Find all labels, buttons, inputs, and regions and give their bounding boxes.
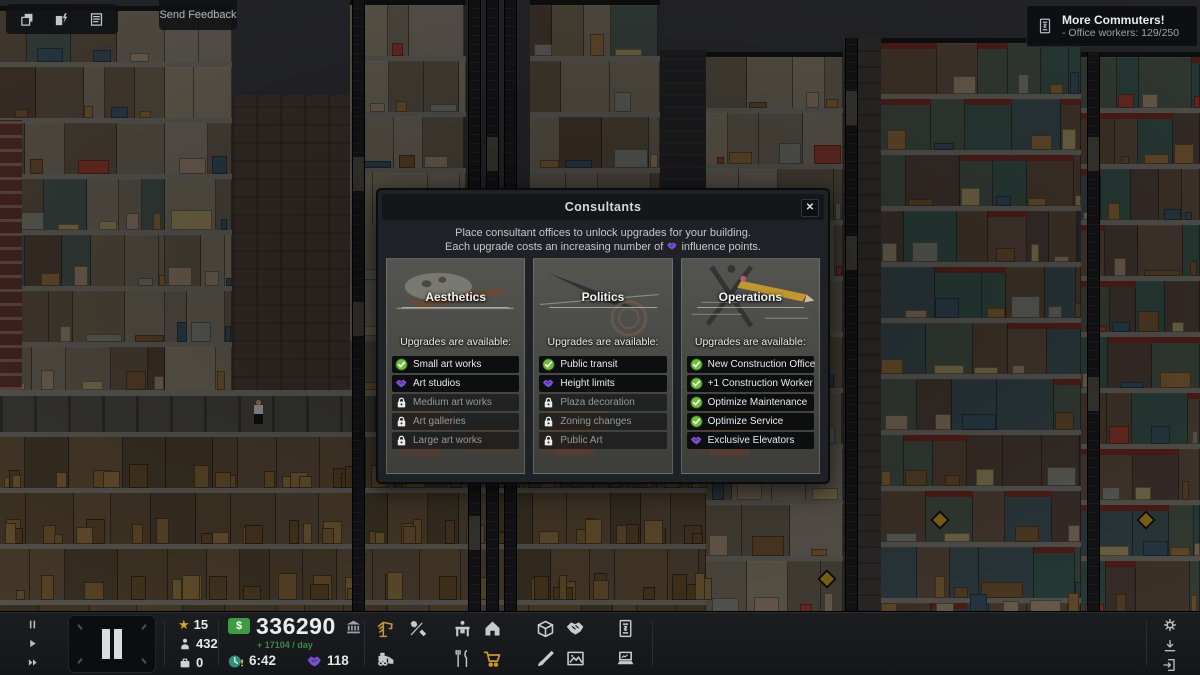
- influence-icon: [666, 240, 678, 252]
- check-icon: [690, 377, 703, 390]
- card-title: Aesthetics: [387, 290, 524, 304]
- cart-icon[interactable]: [480, 646, 504, 670]
- speed-dial[interactable]: [68, 615, 156, 673]
- stat-0: ★15: [178, 617, 208, 632]
- upgrade-row[interactable]: Optimize Service: [687, 413, 814, 430]
- game-screen: Send Feedback More Commuters! - Office w…: [0, 0, 1200, 675]
- upgrade-label: Medium art works: [413, 397, 492, 408]
- contract-icon[interactable]: [613, 616, 637, 640]
- notification-title: More Commuters!: [1062, 13, 1179, 27]
- consultants-modal: Consultants ✕ Place consultant offices t…: [376, 188, 830, 484]
- upgrade-row[interactable]: Exclusive Elevators: [687, 432, 814, 449]
- frame-icon[interactable]: [563, 646, 587, 670]
- upgrade-label: Plaza decoration: [560, 397, 635, 408]
- upgrade-label: Optimize Maintenance: [708, 397, 808, 408]
- food-icon[interactable]: [450, 646, 474, 670]
- handshake-icon[interactable]: [563, 616, 587, 640]
- modal-title: Consultants: [565, 200, 642, 214]
- check-icon: [690, 396, 703, 409]
- toolbar-divider: [164, 620, 165, 666]
- consultant-cards: AestheticsUpgrades are available:Small a…: [386, 258, 820, 474]
- modal-description-line2: Each upgrade costs an increasing number …: [378, 240, 828, 254]
- box-icon[interactable]: [533, 616, 557, 640]
- toolbar-divider: [652, 620, 653, 666]
- card-subtitle: Upgrades are available:: [682, 336, 819, 348]
- card-subtitle: Upgrades are available:: [534, 336, 671, 348]
- modal-description: Place consultant offices to unlock upgra…: [378, 226, 828, 254]
- lock-icon: [395, 434, 408, 447]
- upgrade-row[interactable]: Public Art: [539, 432, 666, 449]
- upgrade-row[interactable]: Art galleries: [392, 413, 519, 430]
- modal-description-line1: Place consultant offices to unlock upgra…: [378, 226, 828, 240]
- toolbar-divider: [218, 620, 219, 666]
- upgrade-row[interactable]: Zoning changes: [539, 413, 666, 430]
- influence-value: 118: [327, 653, 349, 668]
- brush-icon[interactable]: [533, 646, 557, 670]
- upgrade-label: Small art works: [413, 359, 481, 370]
- bottom-toolbar: ★154320$336290+ 17104 / day6:42118: [0, 611, 1200, 675]
- upgrade-list: Public transitHeight limitsPlaza decorat…: [539, 356, 666, 451]
- upgrade-row[interactable]: Optimize Maintenance: [687, 394, 814, 411]
- notification-detail: - Office workers: 129/250: [1062, 27, 1179, 40]
- upgrade-label: Optimize Service: [708, 416, 784, 427]
- upgrade-row[interactable]: New Construction Office: [687, 356, 814, 373]
- bank-icon[interactable]: [344, 617, 364, 641]
- upgrade-label: Height limits: [560, 378, 614, 389]
- lock-icon: [542, 396, 555, 409]
- upgrade-row[interactable]: Large art works: [392, 432, 519, 449]
- check-icon: [395, 358, 408, 371]
- upgrade-label: +1 Construction Worker: [708, 378, 813, 389]
- close-icon[interactable]: ✕: [801, 199, 819, 217]
- upgrade-list: Small art worksArt studiosMedium art wor…: [392, 356, 519, 451]
- pause-icon[interactable]: [24, 617, 40, 631]
- check-icon: [690, 358, 703, 371]
- consultant-card-operations: OperationsUpgrades are available:New Con…: [681, 258, 820, 474]
- check-icon: [690, 415, 703, 428]
- upgrade-label: Exclusive Elevators: [708, 435, 795, 446]
- lock-icon: [395, 396, 408, 409]
- influence-icon: [542, 377, 555, 390]
- balance-value: 336290: [256, 612, 336, 640]
- top-left-toolbar: [6, 4, 118, 34]
- play-icon[interactable]: [24, 636, 40, 650]
- card-title: Politics: [534, 290, 671, 304]
- lock-icon: [542, 415, 555, 428]
- influence-icon: [306, 653, 323, 670]
- notification-panel[interactable]: More Commuters! - Office workers: 129/25…: [1026, 5, 1198, 47]
- stat-value: 0: [196, 655, 203, 670]
- tools-icon[interactable]: [405, 616, 429, 640]
- upgrade-row[interactable]: +1 Construction Worker: [687, 375, 814, 392]
- modal-header: Consultants: [382, 194, 824, 220]
- upgrade-label: Art galleries: [413, 416, 466, 427]
- upgrade-label: Large art works: [413, 435, 482, 446]
- upgrade-row[interactable]: Plaza decoration: [539, 394, 666, 411]
- download-icon[interactable]: [1160, 637, 1180, 655]
- income-per-day: + 17104 / day: [257, 640, 313, 650]
- check-icon: [542, 358, 555, 371]
- upgrade-row[interactable]: Height limits: [539, 375, 666, 392]
- upgrade-label: Public transit: [560, 359, 617, 370]
- bulldozer-icon[interactable]: [373, 646, 397, 670]
- laptop-icon[interactable]: [613, 646, 637, 670]
- ledger-icon[interactable]: [86, 8, 108, 30]
- utilities-icon[interactable]: [51, 8, 73, 30]
- upgrade-row[interactable]: Medium art works: [392, 394, 519, 411]
- toolbar-divider: [364, 620, 365, 666]
- commuters-notification-icon: [1036, 17, 1054, 35]
- star-icon: ★: [178, 618, 190, 632]
- upgrade-label: Public Art: [560, 435, 602, 446]
- layers-icon[interactable]: [16, 8, 38, 30]
- gear-icon[interactable]: [1160, 616, 1180, 634]
- card-subtitle: Upgrades are available:: [387, 336, 524, 348]
- card-title: Operations: [682, 290, 819, 304]
- crane-icon[interactable]: [373, 616, 397, 640]
- fast-forward-icon[interactable]: [24, 655, 40, 669]
- upgrade-list: New Construction Office+1 Construction W…: [687, 356, 814, 451]
- lock-icon: [542, 434, 555, 447]
- consultant-card-aesthetics: AestheticsUpgrades are available:Small a…: [386, 258, 525, 474]
- desk-icon[interactable]: [450, 616, 474, 640]
- upgrade-row[interactable]: Public transit: [539, 356, 666, 373]
- exit-icon[interactable]: [1160, 656, 1180, 674]
- lock-icon: [395, 415, 408, 428]
- upgrade-label: New Construction Office: [708, 359, 816, 370]
- home-icon[interactable]: [480, 616, 504, 640]
- consultant-card-politics: PoliticsUpgrades are available:Public tr…: [533, 258, 672, 474]
- person-icon: [178, 637, 192, 651]
- clock-icon: [227, 653, 244, 670]
- stat-value: 15: [194, 617, 208, 632]
- upgrade-row[interactable]: Art studios: [392, 375, 519, 392]
- influence-icon: [395, 377, 408, 390]
- upgrade-row[interactable]: Small art works: [392, 356, 519, 373]
- stat-1: 432: [178, 636, 218, 651]
- stat-2: 0: [178, 655, 203, 670]
- time-value: 6:42: [249, 653, 276, 668]
- upgrade-label: Zoning changes: [560, 416, 631, 427]
- send-feedback-button[interactable]: Send Feedback: [159, 0, 237, 30]
- toolbar-divider: [1146, 620, 1147, 666]
- suitcase-icon: [178, 656, 192, 670]
- stat-value: 432: [196, 636, 218, 651]
- money-icon: $: [228, 618, 250, 634]
- influence-icon: [690, 434, 703, 447]
- upgrade-label: Art studios: [413, 378, 460, 389]
